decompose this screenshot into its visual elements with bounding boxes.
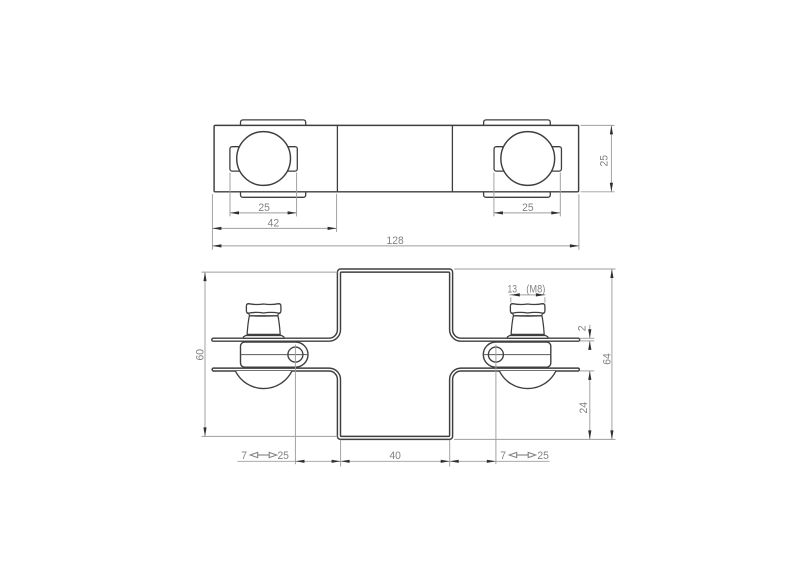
svg-text:25: 25 — [599, 155, 611, 167]
svg-text:25: 25 — [258, 202, 270, 214]
svg-text:25: 25 — [277, 450, 289, 462]
svg-text:7: 7 — [241, 450, 247, 462]
svg-text:25: 25 — [537, 450, 549, 462]
svg-text:40: 40 — [389, 450, 401, 462]
svg-text:2: 2 — [577, 326, 589, 332]
svg-text:7: 7 — [500, 450, 506, 462]
svg-text:25: 25 — [522, 202, 534, 214]
svg-text:60: 60 — [194, 349, 206, 361]
svg-text:(M8): (M8) — [526, 284, 545, 296]
svg-text:13: 13 — [508, 284, 518, 296]
svg-text:24: 24 — [578, 402, 590, 414]
svg-text:42: 42 — [268, 218, 280, 230]
svg-text:128: 128 — [387, 235, 404, 247]
svg-text:64: 64 — [601, 353, 613, 365]
